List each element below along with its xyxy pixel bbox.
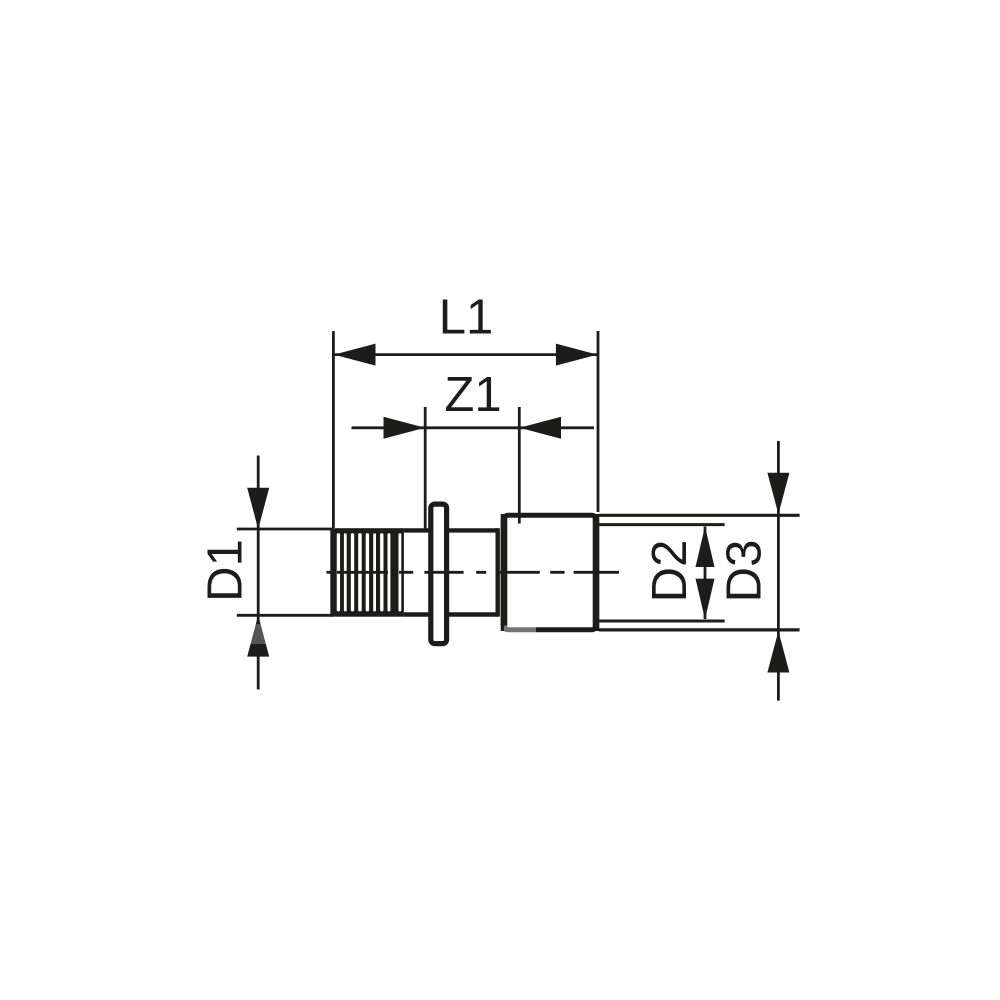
svg-text:D3: D3: [717, 540, 771, 603]
svg-text:L1: L1: [439, 290, 494, 344]
svg-text:Z1: Z1: [444, 368, 501, 422]
svg-text:D1: D1: [198, 539, 252, 602]
svg-text:D2: D2: [643, 540, 697, 603]
